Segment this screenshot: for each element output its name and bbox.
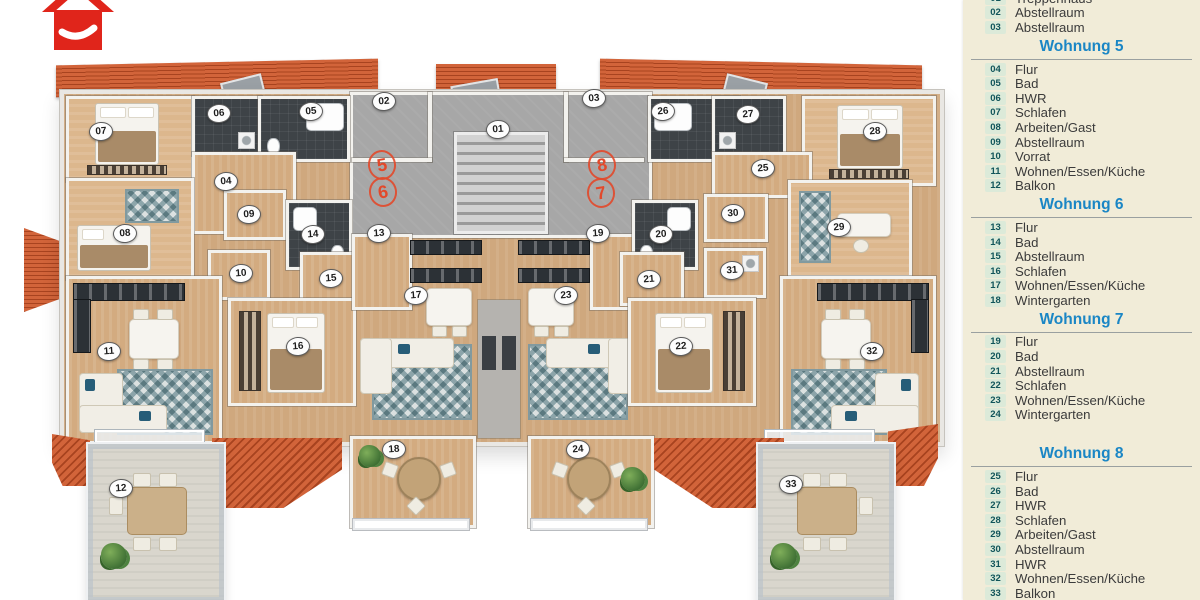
legend-label: Abstellraum	[1015, 364, 1085, 379]
chair	[439, 461, 457, 479]
legend-number: 09	[985, 136, 1006, 149]
chair	[133, 309, 149, 320]
legend-label: Abstellraum	[1015, 542, 1085, 557]
legend-number: 21	[985, 365, 1006, 378]
chair	[534, 326, 549, 337]
floorplan-render: 0102030405060708091011121314151617181920…	[0, 0, 963, 600]
legend-label: HWR	[1015, 498, 1047, 513]
legend-label: Flur	[1015, 220, 1038, 235]
legend-label: Vorrat	[1015, 149, 1050, 164]
apartment-heading: Wohnung 6	[963, 196, 1200, 214]
tv-console	[482, 336, 496, 370]
legend-label: Wintergarten	[1015, 407, 1091, 422]
legend-number: 11	[985, 165, 1006, 178]
separator	[971, 59, 1192, 60]
round-table	[397, 457, 441, 501]
legend-number: 06	[985, 92, 1006, 105]
legend-row: 19Flur	[963, 335, 1200, 350]
washing-machine	[719, 132, 736, 149]
legend-row: 24Wintergarten	[963, 408, 1200, 423]
sofa-cushion	[901, 379, 911, 391]
tv-console	[502, 336, 516, 370]
legend-row: 08Arbeiten/Gast	[963, 120, 1200, 135]
pillow	[128, 107, 154, 118]
legend-label: Wohnen/Essen/Küche	[1015, 278, 1145, 293]
bedroom-rug	[87, 165, 167, 175]
red-house-logo-icon	[38, 0, 118, 60]
legend-label: Schlafen	[1015, 264, 1066, 279]
chair	[133, 537, 151, 551]
legend-label: Abstellraum	[1015, 249, 1085, 264]
legend-row: 22Schlafen	[963, 378, 1200, 393]
legend-row: 07Schlafen	[963, 106, 1200, 121]
washing-machine	[238, 132, 255, 149]
wintergarten-glass-front	[530, 518, 648, 531]
separator	[971, 466, 1192, 467]
legend-number: 18	[985, 294, 1006, 307]
legend-number: 27	[985, 499, 1006, 512]
plant	[771, 543, 797, 569]
chair	[803, 473, 821, 487]
legend-number: 07	[985, 106, 1006, 119]
legend-row: 15Abstellraum	[963, 249, 1200, 264]
kitchen-counter	[410, 240, 482, 255]
legend-label: Arbeiten/Gast	[1015, 527, 1096, 542]
roof-wedge-left	[52, 434, 90, 486]
legend-row: 32Wohnen/Essen/Küche	[963, 571, 1200, 586]
legend-label: Flur	[1015, 469, 1038, 484]
legend-number: 20	[985, 350, 1006, 363]
legend-label: HWR	[1015, 91, 1047, 106]
legend-label: Abstellraum	[1015, 135, 1085, 150]
bedroom-rug	[829, 169, 909, 179]
legend-row: 11Wohnen/Essen/Küche	[963, 164, 1200, 179]
legend-row: 23Wohnen/Essen/Küche	[963, 393, 1200, 408]
legend-label: Balkon	[1015, 586, 1055, 600]
rug	[125, 189, 179, 223]
legend-number: 33	[985, 587, 1006, 600]
apartment-heading: Wohnung 7	[963, 311, 1200, 329]
chair	[159, 537, 177, 551]
roof-wedge-right	[888, 424, 938, 486]
legend-label: Wohnen/Essen/Küche	[1015, 164, 1145, 179]
kitchen-counter	[410, 268, 482, 283]
balcony-12	[88, 444, 224, 600]
legend-label: Wohnen/Essen/Küche	[1015, 393, 1145, 408]
wall-segment	[564, 92, 568, 162]
room-wintergarten-18	[350, 436, 476, 528]
legend-row: 09Abstellraum	[963, 135, 1200, 150]
legend-label: Bad	[1015, 235, 1038, 250]
legend-label: Abstellraum	[1015, 5, 1085, 20]
shower	[667, 207, 691, 231]
legend-number: 22	[985, 379, 1006, 392]
legend-row: 26Bad	[963, 484, 1200, 499]
outdoor-table	[127, 487, 187, 535]
plant	[101, 543, 127, 569]
legend-row: 16Schlafen	[963, 264, 1200, 279]
legend-label: Wintergarten	[1015, 293, 1091, 308]
legend-number: 12	[985, 179, 1006, 192]
legend-spacer	[963, 422, 1200, 442]
outdoor-table	[797, 487, 857, 535]
room-schlafen-07	[66, 96, 194, 182]
chair	[829, 537, 847, 551]
legend-label: Balkon	[1015, 178, 1055, 193]
sofa-cushion	[85, 379, 95, 391]
staircase	[454, 132, 548, 234]
chair	[825, 309, 841, 320]
legend-label: Arbeiten/Gast	[1015, 120, 1096, 135]
pillow	[296, 317, 318, 328]
legend-label: Abstellraum	[1015, 20, 1085, 35]
pillow	[871, 109, 898, 120]
window-strip	[95, 430, 204, 443]
room-schlafen-28	[802, 96, 936, 186]
legend-row: 21Abstellraum	[963, 364, 1200, 379]
legend-row: 27HWR	[963, 498, 1200, 513]
floorplan-page: { "logo": { "label": "red-house-logo" },…	[0, 0, 1200, 600]
room-wintergarten-24	[528, 436, 654, 528]
sofa-cushion	[139, 411, 151, 421]
legend-row: 03Abstellraum	[963, 20, 1200, 35]
legend-number: 16	[985, 265, 1006, 278]
legend-label: Bad	[1015, 76, 1038, 91]
room-legend-panel: 01Treppenhaus02Abstellraum03AbstellraumW…	[963, 0, 1200, 600]
room-wohnen-essen-kueche-11	[66, 276, 222, 444]
dining-table	[129, 319, 179, 359]
legend-number: 25	[985, 470, 1006, 483]
room-flur-13	[352, 234, 412, 310]
room-schlafen-22	[628, 298, 756, 406]
legend-label: Flur	[1015, 62, 1038, 77]
legend-number: 23	[985, 394, 1006, 407]
bedroom-rug	[723, 311, 745, 391]
sofa-cushion	[588, 344, 600, 354]
legend-number: 08	[985, 121, 1006, 134]
legend-row: 02Abstellraum	[963, 6, 1200, 21]
kitchen-counter	[518, 268, 590, 283]
legend-number: 15	[985, 250, 1006, 263]
legend-row: 10Vorrat	[963, 149, 1200, 164]
kitchen-counter	[518, 240, 590, 255]
legend-number: 30	[985, 543, 1006, 556]
legend-label: HWR	[1015, 557, 1047, 572]
legend-number: 24	[985, 408, 1006, 421]
dining-table	[426, 288, 472, 326]
legend-number: 14	[985, 236, 1006, 249]
pillow	[842, 109, 869, 120]
pillow	[684, 317, 706, 328]
balcony-33	[758, 444, 894, 600]
legend-row: 05Bad	[963, 76, 1200, 91]
legend-number: 13	[985, 221, 1006, 234]
sofa	[360, 338, 392, 394]
chair	[159, 473, 177, 487]
legend-label: Schlafen	[1015, 105, 1066, 120]
plant	[359, 445, 381, 467]
round-table	[567, 457, 611, 501]
room-legend-list: 01Treppenhaus02Abstellraum03AbstellraumW…	[963, 0, 1200, 600]
pillow	[272, 317, 294, 328]
legend-row: 17Wohnen/Essen/Küche	[963, 279, 1200, 294]
chair	[849, 309, 865, 320]
desk-chair	[853, 239, 869, 253]
legend-row: 29Arbeiten/Gast	[963, 528, 1200, 543]
legend-row: 04Flur	[963, 62, 1200, 77]
chair	[803, 537, 821, 551]
pillow	[82, 229, 104, 240]
legend-number: 19	[985, 335, 1006, 348]
chair	[859, 497, 873, 515]
legend-number: 31	[985, 558, 1006, 571]
legend-number: 32	[985, 572, 1006, 585]
sofa-cushion	[845, 411, 857, 421]
apartment-heading: Wohnung 8	[963, 445, 1200, 463]
roof-bottom-left	[212, 438, 342, 508]
bedroom-rug	[239, 311, 261, 391]
pillow	[660, 317, 682, 328]
chair	[554, 326, 569, 337]
legend-label: Wohnen/Essen/Küche	[1015, 571, 1145, 586]
legend-row: 14Bad	[963, 235, 1200, 250]
chair	[452, 326, 467, 337]
legend-row: 06HWR	[963, 91, 1200, 106]
legend-number: 26	[985, 485, 1006, 498]
chair	[133, 473, 151, 487]
washing-machine	[742, 255, 759, 272]
room-hwr-06	[192, 96, 262, 156]
wintergarten-glass-front	[352, 518, 470, 531]
chair	[432, 326, 447, 337]
kitchen-counter	[73, 299, 91, 353]
legend-label: Bad	[1015, 484, 1038, 499]
legend-row: 20Bad	[963, 349, 1200, 364]
legend-number: 28	[985, 514, 1006, 527]
chair	[829, 473, 847, 487]
plant	[621, 467, 645, 491]
legend-row: 31HWR	[963, 557, 1200, 572]
legend-number: 02	[985, 6, 1006, 19]
apartment-heading: Wohnung 5	[963, 38, 1200, 56]
legend-row: 12Balkon	[963, 179, 1200, 194]
legend-label: Schlafen	[1015, 513, 1066, 528]
legend-row: 28Schlafen	[963, 513, 1200, 528]
room-wohnen-essen-kueche-32	[780, 276, 936, 444]
sofa	[79, 405, 167, 433]
legend-row: 18Wintergarten	[963, 293, 1200, 308]
legend-number: 03	[985, 21, 1006, 34]
legend-number: 29	[985, 528, 1006, 541]
legend-number: 17	[985, 279, 1006, 292]
kitchen-counter	[911, 299, 929, 353]
legend-row: 33Balkon	[963, 586, 1200, 600]
sofa-cushion	[398, 344, 410, 354]
separator	[971, 332, 1192, 333]
legend-label: Bad	[1015, 349, 1038, 364]
legend-row: 30Abstellraum	[963, 542, 1200, 557]
legend-number: 10	[985, 150, 1006, 163]
separator	[971, 217, 1192, 218]
legend-label: Flur	[1015, 334, 1038, 349]
legend-row: 25Flur	[963, 469, 1200, 484]
wall-segment	[428, 92, 432, 162]
pillow	[100, 107, 126, 118]
legend-number: 04	[985, 63, 1006, 76]
legend-label: Schlafen	[1015, 378, 1066, 393]
chair	[157, 309, 173, 320]
blanket	[80, 245, 148, 268]
legend-number: 01	[985, 0, 1006, 5]
legend-number: 05	[985, 77, 1006, 90]
chair	[109, 497, 123, 515]
legend-row: 13Flur	[963, 220, 1200, 235]
